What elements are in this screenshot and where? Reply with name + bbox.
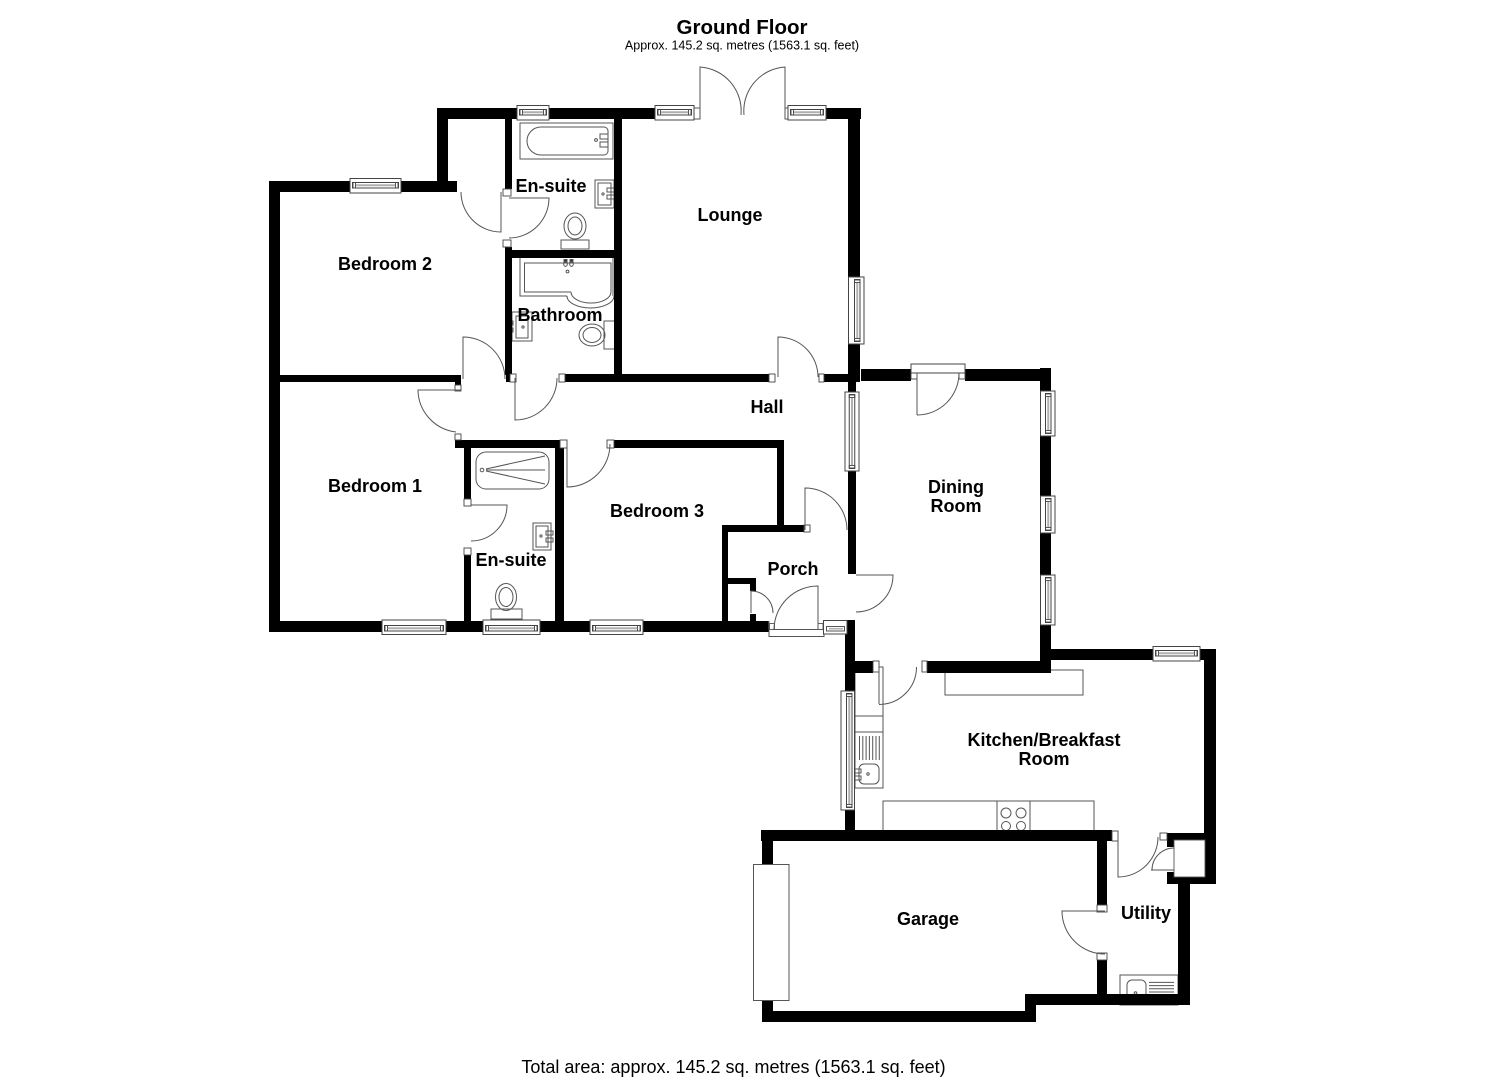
svg-text:En-suite: En-suite bbox=[475, 550, 546, 570]
svg-text:En-suite: En-suite bbox=[515, 176, 586, 196]
svg-text:Bedroom 1: Bedroom 1 bbox=[328, 476, 422, 496]
svg-text:Bathroom: Bathroom bbox=[518, 305, 603, 325]
svg-text:Hall: Hall bbox=[750, 397, 783, 417]
svg-text:Ground Floor: Ground Floor bbox=[677, 16, 808, 39]
svg-text:Porch: Porch bbox=[767, 559, 818, 579]
svg-text:Utility: Utility bbox=[1121, 903, 1171, 923]
svg-text:Lounge: Lounge bbox=[698, 205, 763, 225]
svg-text:Room: Room bbox=[931, 496, 982, 516]
svg-text:Garage: Garage bbox=[897, 909, 959, 929]
svg-text:Bedroom 2: Bedroom 2 bbox=[338, 254, 432, 274]
svg-text:Room: Room bbox=[1019, 749, 1070, 769]
svg-text:Dining: Dining bbox=[928, 477, 984, 497]
svg-text:Approx. 145.2 sq. metres (1563: Approx. 145.2 sq. metres (1563.1 sq. fee… bbox=[625, 39, 859, 53]
svg-text:Kitchen/Breakfast: Kitchen/Breakfast bbox=[967, 730, 1120, 750]
svg-text:Bedroom 3: Bedroom 3 bbox=[610, 501, 704, 521]
svg-text:Total area: approx. 145.2 sq.: Total area: approx. 145.2 sq. metres (15… bbox=[521, 1057, 945, 1077]
